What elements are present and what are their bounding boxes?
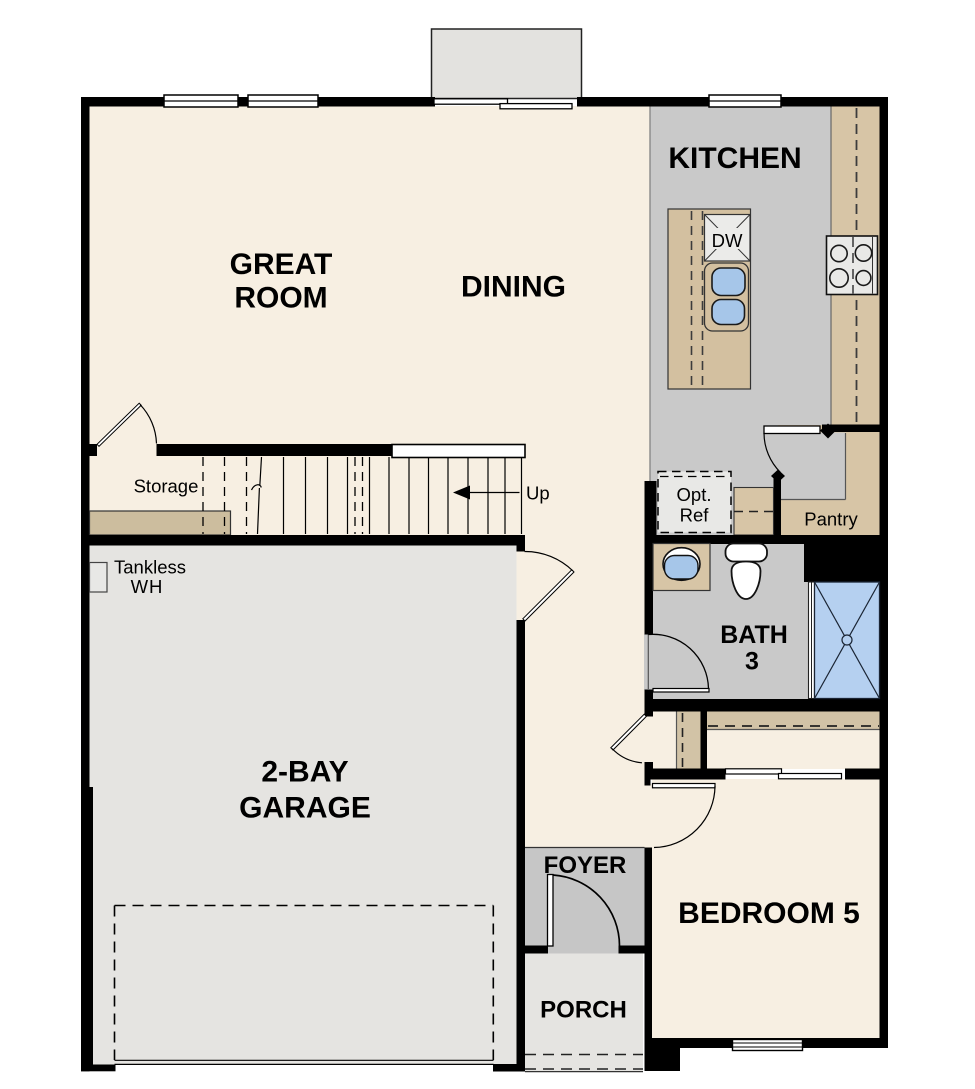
svg-text:Ref: Ref — [680, 505, 710, 526]
svg-text:DW: DW — [712, 230, 743, 251]
svg-text:BATH: BATH — [720, 621, 788, 649]
svg-text:Storage: Storage — [134, 476, 199, 497]
svg-text:Opt.: Opt. — [677, 484, 712, 505]
svg-text:KITCHEN: KITCHEN — [668, 142, 801, 175]
svg-text:GREAT: GREAT — [230, 248, 333, 281]
svg-text:WH: WH — [131, 576, 164, 597]
svg-text:GARAGE: GARAGE — [239, 792, 371, 825]
svg-text:DINING: DINING — [461, 270, 566, 303]
svg-text:Pantry: Pantry — [804, 508, 858, 529]
svg-text:3: 3 — [745, 648, 759, 676]
svg-text:ROOM: ROOM — [234, 282, 327, 315]
svg-text:Tankless: Tankless — [114, 557, 186, 578]
svg-text:Up: Up — [526, 483, 550, 504]
svg-text:PORCH: PORCH — [540, 997, 627, 1024]
svg-text:BEDROOM 5: BEDROOM 5 — [678, 897, 860, 930]
svg-text:2-BAY: 2-BAY — [261, 756, 348, 789]
